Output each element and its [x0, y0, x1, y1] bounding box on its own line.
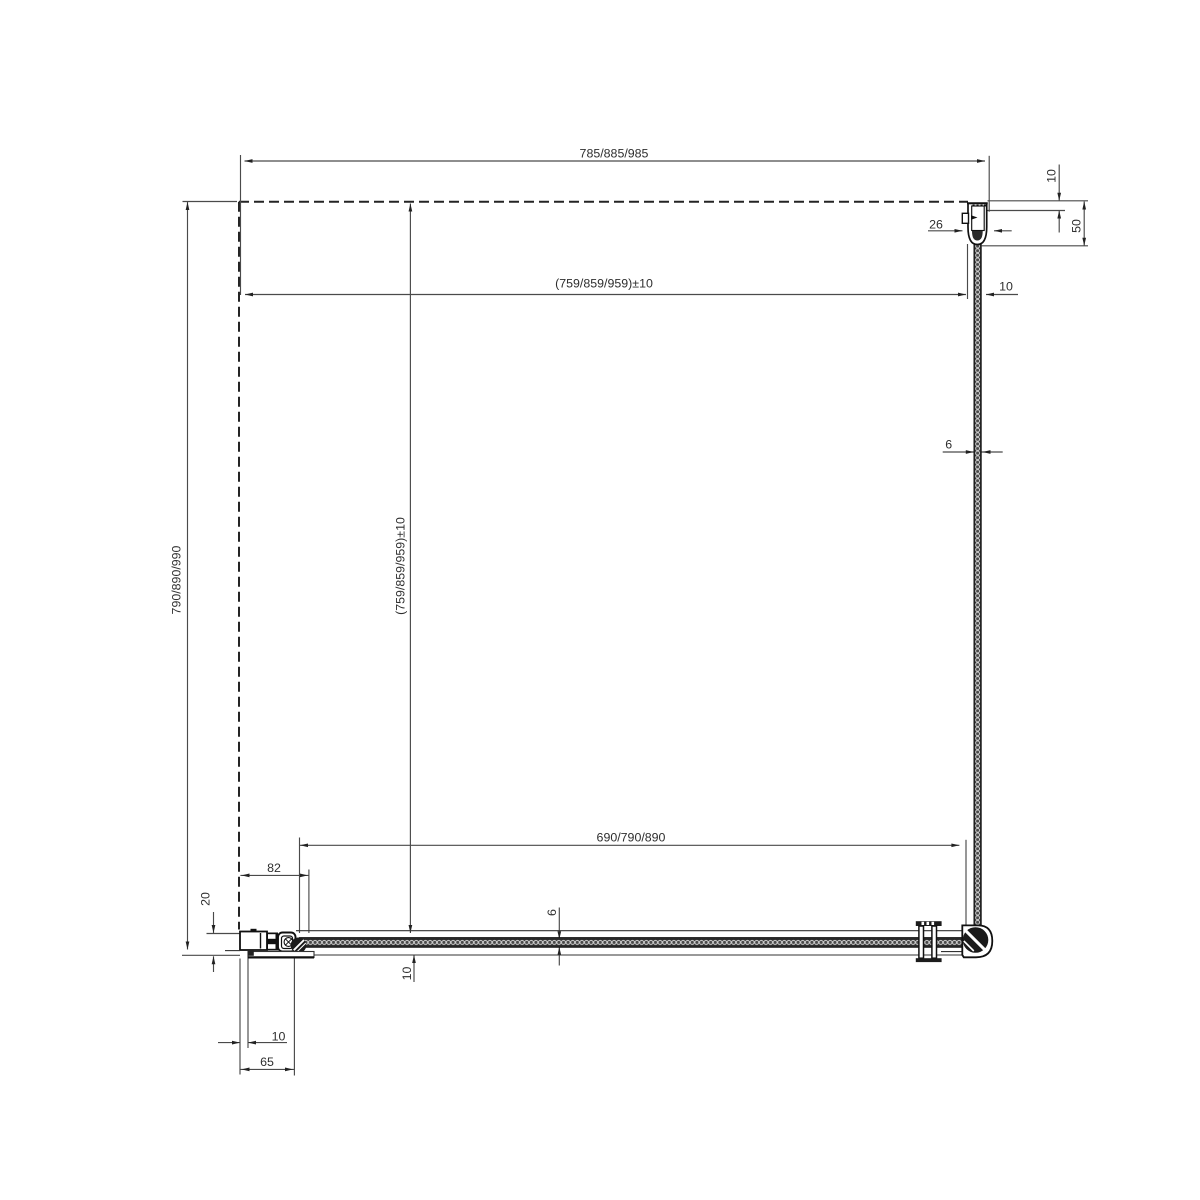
svg-text:65: 65 — [260, 1055, 274, 1069]
svg-text:(759/859/959)±10: (759/859/959)±10 — [555, 277, 653, 291]
svg-text:790/890/990: 790/890/990 — [170, 545, 184, 614]
svg-text:10: 10 — [1045, 169, 1059, 183]
svg-text:690/790/890: 690/790/890 — [597, 831, 666, 845]
svg-text:10: 10 — [272, 1030, 286, 1044]
svg-text:(759/859/959)±10: (759/859/959)±10 — [394, 517, 408, 615]
svg-text:10: 10 — [999, 280, 1013, 294]
svg-text:82: 82 — [267, 861, 281, 875]
svg-text:785/885/985: 785/885/985 — [580, 147, 649, 161]
svg-text:6: 6 — [545, 909, 559, 916]
svg-text:10: 10 — [400, 967, 414, 981]
svg-text:50: 50 — [1070, 219, 1084, 233]
svg-text:20: 20 — [199, 892, 213, 906]
svg-text:26: 26 — [929, 218, 943, 232]
svg-text:6: 6 — [945, 438, 952, 452]
